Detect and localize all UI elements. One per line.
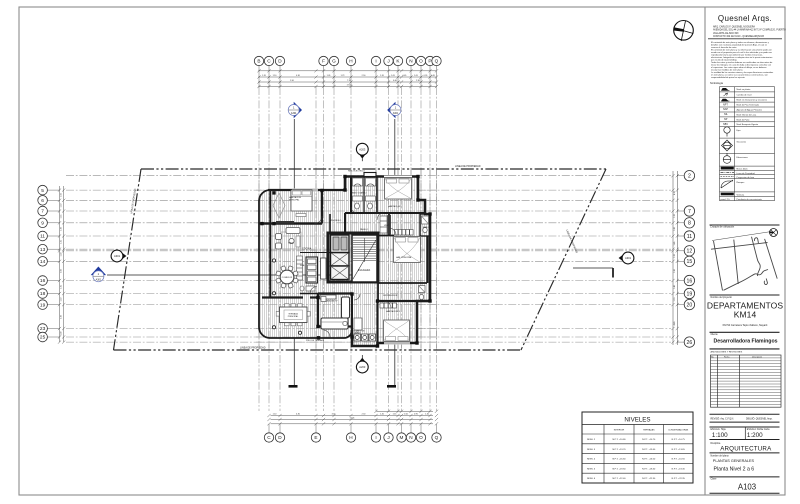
svg-text:1.40: 1.40 — [674, 285, 676, 289]
svg-text:16: 16 — [687, 278, 693, 284]
svg-text:N.P.T. +19.40: N.P.T. +19.40 — [642, 468, 656, 470]
svg-text:NIVEL 3: NIVEL 3 — [587, 449, 596, 451]
svg-text:VESTIBULO: VESTIBULO — [330, 220, 342, 222]
svg-text:1.10: 1.10 — [60, 298, 62, 302]
svg-text:NIVEL 4: NIVEL 4 — [587, 459, 596, 461]
svg-text:19: 19 — [687, 291, 693, 297]
svg-text:pend. 2%: pend. 2% — [721, 199, 730, 201]
svg-text:25: 25 — [40, 335, 46, 341]
svg-text:Rampas: Rampas — [737, 182, 745, 184]
svg-text:7.35: 7.35 — [347, 80, 351, 82]
svg-text:PRINCIPAL: PRINCIPAL — [289, 198, 300, 201]
svg-text:BAÑO 1 BAÑO 2: BAÑO 1 BAÑO 2 — [352, 191, 366, 194]
svg-text:VEST.: VEST. — [384, 225, 390, 227]
svg-text:HABITACION 3: HABITACION 3 — [386, 310, 401, 313]
svg-text:NIL: NIL — [724, 113, 728, 116]
svg-text:NIVEL 6: NIVEL 6 — [587, 478, 596, 480]
svg-text:Desarrolladora Flamingos: Desarrolladora Flamingos — [714, 339, 778, 345]
svg-text:N.P.T. +19.50: N.P.T. +19.50 — [612, 468, 626, 470]
svg-text:E: E — [314, 435, 317, 440]
svg-text:ARQUITECTURA: ARQUITECTURA — [720, 445, 772, 452]
svg-text:I: I — [375, 59, 376, 64]
svg-text:4.40: 4.40 — [674, 322, 676, 326]
svg-text:1.35: 1.35 — [60, 285, 62, 289]
svg-text:LAVADO: LAVADO — [354, 332, 362, 335]
svg-text:11: 11 — [687, 234, 692, 240]
svg-text:REVISÓ: Arq. C.F.Q.N.: REVISÓ: Arq. C.F.Q.N. — [711, 417, 735, 420]
svg-text:1.00: 1.00 — [404, 414, 408, 416]
svg-text:8: 8 — [688, 221, 691, 227]
svg-text:N.P.T. +10.75: N.P.T. +10.75 — [672, 439, 686, 441]
svg-text:Muros block: Muros block — [737, 168, 749, 171]
svg-text:HABITACION 2: HABITACION 2 — [388, 205, 403, 208]
svg-text:Pendiente de escurrimiento: Pendiente de escurrimiento — [737, 198, 763, 201]
svg-text:Q: Q — [435, 59, 439, 64]
svg-text:SALA DE TV: SALA DE TV — [325, 300, 338, 303]
svg-text:N.P.T. +16.60: N.P.T. +16.60 — [612, 459, 626, 461]
svg-text:Secciones: Secciones — [737, 142, 747, 144]
svg-text:1.80: 1.80 — [674, 227, 676, 231]
svg-text:7: 7 — [41, 209, 44, 215]
svg-text:F: F — [322, 59, 325, 64]
svg-text:KM 54 Carretera Tepic-Xalisco,: KM 54 Carretera Tepic-Xalisco, Nayarit — [723, 323, 768, 327]
svg-text:KM14: KM14 — [734, 310, 757, 320]
svg-text:SALA: SALA — [288, 241, 294, 244]
svg-text:13: 13 — [40, 247, 46, 253]
svg-text:5.90: 5.90 — [290, 80, 294, 82]
svg-text:Descripción: Descripción — [752, 355, 762, 358]
svg-text:15: 15 — [687, 259, 693, 265]
svg-text:1.30: 1.30 — [60, 227, 62, 231]
svg-text:1.25: 1.25 — [60, 240, 62, 244]
svg-text:PISO DE TERRAZA: PISO DE TERRAZA — [306, 339, 325, 342]
svg-text:REG. ELECTRICO: REG. ELECTRICO — [348, 171, 365, 173]
svg-text:1.20: 1.20 — [380, 75, 384, 77]
svg-text:12: 12 — [687, 249, 693, 255]
svg-text:N: N — [409, 59, 412, 64]
svg-text:N.P.T. +22.40: N.P.T. +22.40 — [612, 478, 626, 480]
svg-text:1.15: 1.15 — [393, 414, 397, 416]
svg-text:A203: A203 — [359, 365, 366, 369]
svg-text:ANOTACIONES Y REVISIONES: ANOTACIONES Y REVISIONES — [711, 351, 743, 354]
svg-text:Proyeccion de losa: Proyeccion de losa — [737, 176, 755, 179]
svg-text:LINEA DE PROPIEDAD: LINEA DE PROPIEDAD — [240, 347, 266, 350]
svg-text:TERRAZA: TERRAZA — [288, 312, 298, 315]
svg-text:N.P.T. +19.45: N.P.T. +19.45 — [672, 468, 686, 470]
svg-text:ESCALA: Doble Carta: ESCALA: Doble Carta — [747, 428, 770, 431]
svg-text:1.20: 1.20 — [262, 75, 266, 77]
svg-text:0.65: 0.65 — [403, 75, 407, 77]
svg-text:COMEDOR: COMEDOR — [282, 277, 293, 279]
svg-text:1.20: 1.20 — [380, 414, 384, 416]
svg-text:N.P.T. +22.30: N.P.T. +22.30 — [642, 478, 656, 480]
svg-text:NP: NP — [724, 118, 728, 121]
svg-text:N.P.T. +16.55: N.P.T. +16.55 — [672, 459, 686, 461]
svg-text:2.30: 2.30 — [60, 315, 62, 319]
svg-text:HAB. PRINCIPAL: HAB. PRINCIPAL — [396, 256, 413, 259]
svg-text:J: J — [387, 435, 389, 440]
svg-text:11: 11 — [40, 234, 45, 240]
svg-text:Aparato de Aguas Pluviales: Aparato de Aguas Pluviales — [737, 108, 762, 111]
svg-text:2.00: 2.00 — [60, 269, 62, 273]
svg-text:N.P.T. +13.70: N.P.T. +13.70 — [612, 449, 626, 451]
svg-text:20: 20 — [687, 302, 693, 308]
svg-text:4.60: 4.60 — [393, 80, 397, 82]
svg-text:17.05: 17.05 — [350, 418, 355, 420]
svg-text:DISTRIBUIDOR: DISTRIBUIDOR — [383, 295, 398, 297]
svg-text:BAÑO: BAÑO — [423, 226, 429, 229]
svg-text:1.05: 1.05 — [391, 75, 395, 77]
svg-text:N.P.T. +10.70: N.P.T. +10.70 — [642, 439, 656, 441]
svg-text:TERRAZAS: TERRAZAS — [643, 429, 655, 432]
svg-text:LINEA DE PROPIEDAD: LINEA DE PROPIEDAD — [455, 165, 481, 168]
svg-text:Nivel de Patio: Nivel de Patio — [737, 118, 751, 121]
svg-text:0.65: 0.65 — [431, 75, 435, 77]
svg-text:CONDENSADORAS: CONDENSADORAS — [668, 429, 689, 432]
svg-text:Nivel en elevaciones y seccion: Nivel en elevaciones y secciones — [737, 100, 768, 102]
svg-text:Nivel en planta: Nivel en planta — [737, 88, 752, 91]
svg-text:NIVEL 2: NIVEL 2 — [587, 439, 596, 441]
svg-text:Nivel Banqueta Vigente: Nivel Banqueta Vigente — [737, 123, 760, 126]
svg-text:Nivel de Piso Terminado: Nivel de Piso Terminado — [737, 104, 760, 107]
svg-text:Elevaciones: Elevaciones — [737, 157, 748, 159]
svg-text:NBV: NBV — [723, 123, 728, 126]
svg-text:NPT: NPT — [723, 103, 728, 106]
svg-text:P: P — [428, 59, 431, 64]
svg-text:ISLA: ISLA — [300, 264, 305, 267]
svg-text:ESCALA: Hoja: ESCALA: Hoja — [711, 428, 727, 431]
svg-text:1.10: 1.10 — [674, 298, 676, 302]
svg-text:1.20: 1.20 — [674, 254, 676, 258]
svg-text:2: 2 — [688, 174, 691, 180]
svg-text:4.30: 4.30 — [296, 75, 300, 77]
svg-text:18: 18 — [40, 291, 46, 297]
svg-text:1.15: 1.15 — [60, 215, 62, 219]
svg-text:No.: No. — [711, 356, 714, 358]
svg-text:Nivel Inferior de Losa: Nivel Inferior de Losa — [737, 113, 757, 116]
svg-text:H: H — [349, 435, 352, 440]
svg-text:2.50: 2.50 — [362, 75, 366, 77]
svg-text:N.P.T. +13.60: N.P.T. +13.60 — [642, 449, 656, 451]
svg-text:Simbología: Simbología — [710, 81, 724, 85]
svg-text:1.05: 1.05 — [327, 75, 331, 77]
svg-text:Ventana: Ventana — [737, 193, 745, 196]
svg-text:Planta Nivel 2 a 6: Planta Nivel 2 a 6 — [714, 467, 755, 473]
svg-text:Linea de Propiedad: Linea de Propiedad — [737, 172, 756, 175]
svg-text:DIBUJÓ: QUESNEL Arqs.: DIBUJÓ: QUESNEL Arqs. — [746, 417, 773, 420]
svg-text:J: J — [387, 59, 389, 64]
svg-text:AVENIDA DEL SOL #4 LA MARINA #: AVENIDA DEL SOL #4 LA MARINA #12 INT 2-F… — [713, 29, 786, 32]
svg-text:2.30: 2.30 — [416, 80, 420, 82]
svg-text:A301: A301 — [96, 278, 102, 281]
svg-text:1.10: 1.10 — [60, 204, 62, 208]
svg-text:A103: A103 — [738, 483, 756, 492]
svg-text:1.10: 1.10 — [425, 414, 429, 416]
svg-text:N.P.T. +10.80: N.P.T. +10.80 — [612, 439, 626, 441]
svg-text:Clave: Clave — [711, 479, 718, 481]
svg-text:B: B — [257, 59, 260, 64]
svg-text:1.05: 1.05 — [414, 75, 418, 77]
svg-text:G: G — [332, 59, 336, 64]
svg-text:COCINA: COCINA — [302, 248, 312, 251]
svg-text:N.P.T. +13.65: N.P.T. +13.65 — [672, 449, 686, 451]
svg-text:Nombre del proyecto: Nombre del proyecto — [711, 296, 733, 299]
svg-text:Cliente: Cliente — [711, 333, 719, 336]
svg-text:Ejes: Ejes — [737, 130, 741, 132]
svg-text:VALLARTA JALISCO MX: VALLARTA JALISCO MX — [713, 32, 739, 35]
svg-text:5: 5 — [41, 188, 44, 194]
svg-text:Quesnel Arqs.: Quesnel Arqs. — [718, 14, 772, 23]
svg-text:1.73: 1.73 — [341, 75, 345, 77]
svg-text:A301: A301 — [625, 256, 632, 260]
svg-text:1.10: 1.10 — [273, 75, 277, 77]
svg-text:CONTACTO 322 222 1010 - QUESNE: CONTACTO 322 222 1010 - QUESNELARQS.MX — [713, 35, 764, 38]
svg-text:PRINCIPAL: PRINCIPAL — [288, 315, 299, 318]
svg-text:0.95: 0.95 — [424, 75, 428, 77]
svg-text:NIVEL 5: NIVEL 5 — [587, 468, 596, 470]
svg-text:26: 26 — [687, 340, 693, 346]
svg-text:1.45: 1.45 — [674, 242, 676, 246]
svg-text:N.P.T. +16.50: N.P.T. +16.50 — [642, 459, 656, 461]
svg-text:NAP: NAP — [723, 108, 728, 111]
svg-text:M: M — [400, 435, 404, 440]
svg-text:O: O — [419, 435, 423, 440]
svg-text:I: I — [375, 435, 376, 440]
svg-text:PASILLO: PASILLO — [360, 228, 369, 231]
svg-text:1:100: 1:100 — [712, 432, 728, 439]
svg-text:A301: A301 — [291, 112, 297, 115]
svg-text:A301: A301 — [393, 112, 399, 115]
svg-text:17.10: 17.10 — [347, 85, 352, 87]
svg-text:1.10: 1.10 — [273, 414, 277, 416]
svg-text:N.P.T. +22.35: N.P.T. +22.35 — [672, 478, 686, 480]
svg-text:2.50: 2.50 — [362, 414, 366, 416]
svg-text:responsabilidad de quien las e: responsabilidad de quien las ejecute. — [711, 76, 746, 79]
svg-text:6: 6 — [41, 198, 44, 204]
svg-text:4.20: 4.20 — [674, 191, 676, 195]
svg-text:Nombre del plano: Nombre del plano — [711, 454, 730, 457]
svg-text:1.02: 1.02 — [60, 193, 62, 197]
svg-text:H: H — [349, 59, 352, 64]
svg-text:4.30: 4.30 — [296, 414, 300, 416]
svg-text:1:200: 1:200 — [747, 432, 763, 439]
svg-text:1.00: 1.00 — [60, 332, 62, 336]
svg-text:7: 7 — [688, 209, 691, 215]
svg-text:ESCALERA: ESCALERA — [358, 269, 371, 272]
svg-text:1.20: 1.20 — [674, 214, 676, 218]
svg-text:Q: Q — [435, 435, 439, 440]
svg-text:14: 14 — [40, 259, 46, 265]
svg-text:NIVELES: NIVELES — [624, 417, 650, 424]
svg-text:O: O — [419, 59, 423, 64]
svg-text:A203: A203 — [359, 147, 366, 151]
svg-text:3.55: 3.55 — [332, 414, 336, 416]
svg-text:INTERIOR: INTERIOR — [614, 430, 625, 432]
svg-text:16: 16 — [40, 278, 46, 284]
svg-text:Cambio de nivel: Cambio de nivel — [737, 94, 752, 96]
svg-text:PLANTAS GENERALES: PLANTAS GENERALES — [713, 459, 755, 463]
svg-text:19: 19 — [40, 302, 46, 308]
svg-text:1.20: 1.20 — [60, 253, 62, 257]
svg-text:ARQ. CARLOS F. QUESNEL NOGUERA: ARQ. CARLOS F. QUESNEL NOGUERA — [713, 26, 755, 29]
svg-text:1.90: 1.90 — [674, 269, 676, 273]
svg-text:23: 23 — [40, 326, 46, 332]
svg-text:A301: A301 — [114, 254, 121, 258]
svg-text:N: N — [409, 435, 412, 440]
svg-text:9: 9 — [41, 221, 44, 227]
svg-text:0.95: 0.95 — [414, 414, 418, 416]
svg-text:Croquis de ubicación: Croquis de ubicación — [710, 225, 735, 229]
